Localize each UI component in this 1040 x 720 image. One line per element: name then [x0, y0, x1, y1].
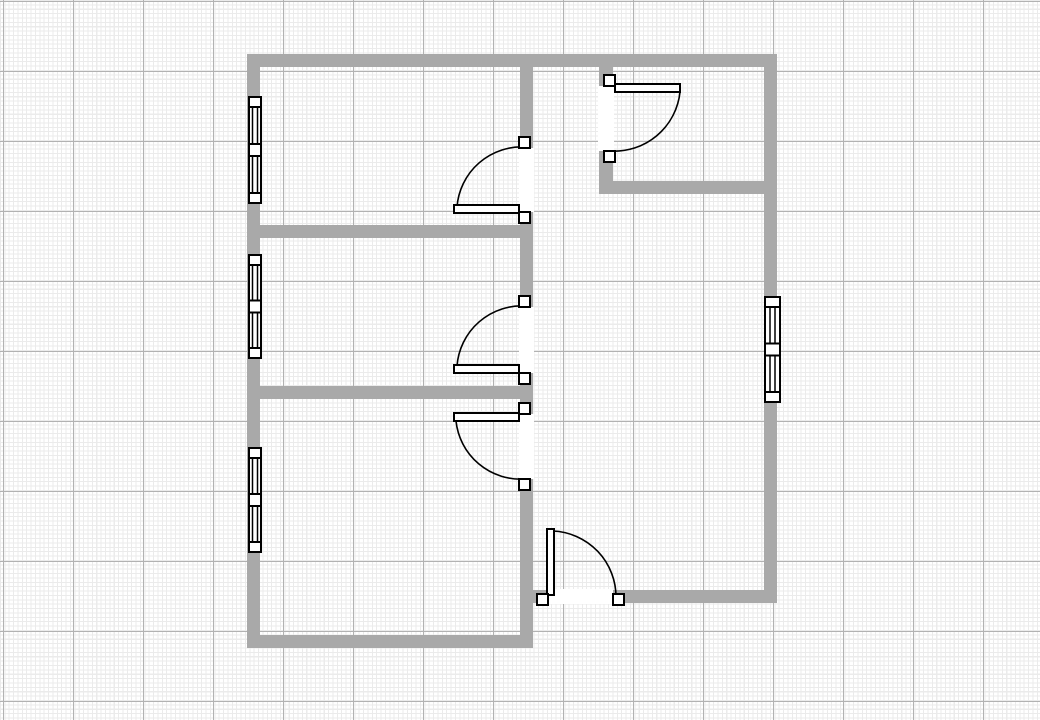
window-left-lower-pane-lower — [253, 506, 258, 542]
door-entry-jamb-1 — [604, 75, 615, 86]
door-hall-middle-jamb-1 — [519, 296, 530, 307]
door-hall-middle-swing-arc — [457, 306, 526, 366]
window-left-middle[interactable] — [249, 255, 261, 358]
door-exterior-bottom[interactable] — [537, 529, 624, 605]
window-left-middle-pane-upper — [253, 265, 258, 301]
window-left-upper-pane-lower — [253, 156, 258, 193]
door-entry[interactable] — [598, 75, 680, 162]
wall-top[interactable] — [247, 54, 777, 67]
wall-divider-upper[interactable] — [247, 225, 533, 238]
door-hall-upper-jamb-2 — [519, 212, 530, 223]
wall-divider-lower[interactable] — [247, 386, 533, 399]
window-right-pane-upper — [770, 307, 775, 344]
window-right-sash-middle — [765, 344, 780, 356]
door-hall-upper-swing-arc — [457, 147, 526, 207]
door-entry-jamb-2 — [604, 151, 615, 162]
window-left-middle-sash-middle — [249, 301, 261, 313]
door-hall-upper-jamb-1 — [519, 137, 530, 148]
door-hall-lower-jamb-2 — [519, 479, 530, 490]
door-hall-middle-leaf — [454, 365, 519, 373]
door-hall-lower-opening — [519, 414, 534, 479]
door-exterior-bottom-jamb-2 — [613, 594, 624, 605]
window-left-upper-sash-middle — [249, 144, 261, 156]
door-hall-lower-jamb-1 — [519, 403, 530, 414]
door-hall-upper-leaf — [454, 205, 519, 213]
door-hall-middle-jamb-2 — [519, 373, 530, 384]
window-left-upper[interactable] — [249, 97, 261, 203]
window-left-lower[interactable] — [249, 448, 261, 552]
wall-bottom-left[interactable] — [247, 635, 533, 648]
door-exterior-bottom-swing-arc — [553, 531, 616, 597]
door-hall-upper-opening — [519, 148, 534, 212]
door-hall-lower-leaf — [454, 413, 519, 421]
window-left-upper-pane-upper — [253, 107, 258, 144]
window-left-lower-sash-top — [249, 448, 261, 458]
window-left-upper-sash-bottom — [249, 193, 261, 203]
door-exterior-bottom-jamb-1 — [537, 594, 548, 605]
door-entry-opening — [598, 86, 614, 151]
window-left-upper-sash-top — [249, 97, 261, 107]
wall-entry-horizontal[interactable] — [599, 181, 777, 194]
window-left-middle-sash-top — [249, 255, 261, 265]
window-left-lower-sash-bottom — [249, 542, 261, 552]
door-hall-lower-swing-arc — [456, 421, 525, 479]
door-entry-swing-arc — [610, 92, 680, 151]
door-hall-upper[interactable] — [454, 137, 534, 223]
window-right-pane-lower — [770, 356, 775, 393]
door-exterior-bottom-leaf — [547, 529, 554, 595]
window-right-sash-bottom — [765, 392, 780, 402]
floorplan-canvas[interactable] — [0, 0, 1040, 720]
floorplan-drawing — [0, 0, 1040, 720]
window-left-lower-sash-middle — [249, 494, 261, 506]
door-hall-middle-opening — [519, 307, 534, 373]
door-hall-middle[interactable] — [454, 296, 534, 384]
window-right[interactable] — [765, 297, 780, 402]
door-entry-leaf — [615, 84, 680, 92]
door-hall-lower[interactable] — [454, 403, 534, 490]
door-exterior-bottom-opening — [548, 589, 613, 604]
window-right-sash-top — [765, 297, 780, 307]
window-left-lower-pane-upper — [253, 458, 258, 494]
window-left-middle-pane-lower — [253, 313, 258, 349]
window-left-middle-sash-bottom — [249, 348, 261, 358]
